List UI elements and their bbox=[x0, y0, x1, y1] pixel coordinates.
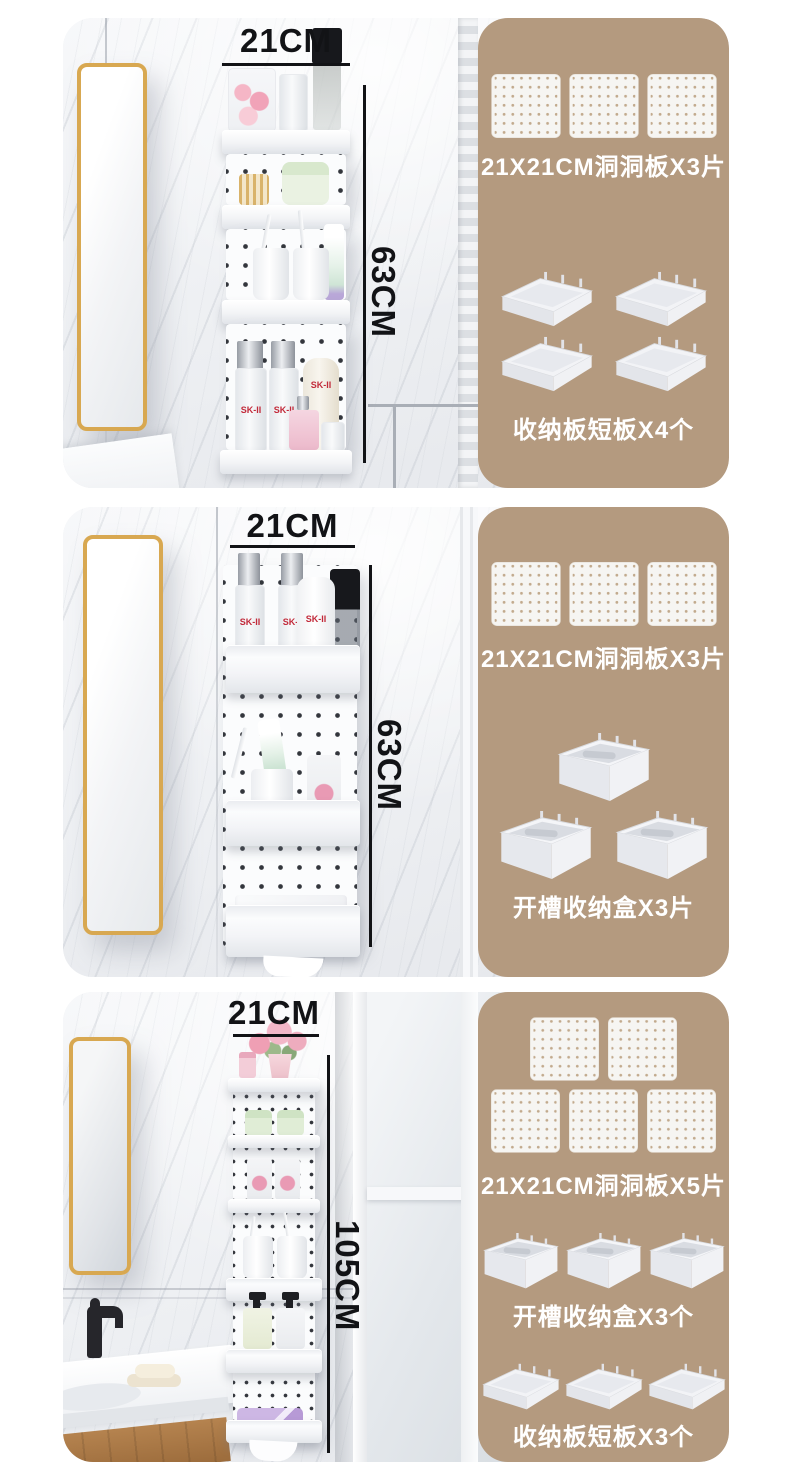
mirror bbox=[83, 535, 163, 935]
toothbrush-cup bbox=[277, 1236, 307, 1279]
pegboard-thumbnail bbox=[647, 1089, 716, 1153]
box-thumb-grid bbox=[496, 733, 712, 881]
tray-thumbnail bbox=[611, 336, 711, 393]
shelf-box bbox=[226, 645, 360, 693]
lotion-bottle bbox=[279, 74, 308, 132]
dimension-height-label: 63CM bbox=[367, 246, 400, 338]
pegboard-thumbnail bbox=[530, 1017, 599, 1081]
tissue-paper bbox=[263, 955, 324, 977]
faucet bbox=[87, 1314, 102, 1358]
dimension-width-label: 21CM bbox=[230, 509, 355, 542]
kit-caption: 21X21CM洞洞板X5片 bbox=[481, 1172, 726, 1202]
kit-caption: 21X21CM洞洞板X3片 bbox=[481, 645, 726, 675]
shelf-box bbox=[226, 800, 360, 846]
soap-bar bbox=[135, 1364, 175, 1378]
pegboard-thumbnail bbox=[647, 562, 717, 626]
tray-thumbnail bbox=[611, 271, 711, 328]
dimension-height-label: 105CM bbox=[331, 1220, 364, 1331]
kit-caption: 开槽收纳盒X3片 bbox=[513, 894, 694, 924]
flower-vase bbox=[266, 1054, 294, 1080]
brand-label: SK-II bbox=[311, 380, 332, 390]
makeup-sponge-jar bbox=[228, 68, 276, 132]
mirror bbox=[69, 1037, 131, 1275]
shelf-box bbox=[226, 1420, 322, 1443]
pegboard-thumb-grid bbox=[491, 1017, 716, 1153]
dimension-height-label: 63CM bbox=[373, 719, 406, 811]
kit-caption: 21X21CM洞洞板X3片 bbox=[481, 153, 726, 183]
box-thumbnail bbox=[496, 811, 596, 881]
dimension-width-line bbox=[222, 63, 350, 66]
shelf-box bbox=[226, 905, 360, 957]
perfume-sprayer bbox=[297, 396, 309, 410]
shelf-tray bbox=[228, 1078, 320, 1092]
box-thumb-grid bbox=[481, 1233, 727, 1290]
ribbed-glass-edge bbox=[458, 18, 478, 488]
tray-thumbnail bbox=[481, 1363, 561, 1411]
bathroom-scene-photo: SK-II SK-II SK-II 21CM 63CM bbox=[63, 507, 508, 977]
frosted-bottle bbox=[275, 1158, 300, 1200]
mirror bbox=[77, 63, 147, 431]
dimension-width-label: 21CM bbox=[228, 996, 320, 1029]
pink-perfume-bottle bbox=[289, 410, 319, 450]
shelf-box bbox=[226, 1349, 322, 1373]
kit-caption: 收纳板短板X4个 bbox=[513, 416, 694, 446]
green-speckled-jar bbox=[282, 162, 329, 205]
shelf-tray bbox=[228, 1135, 320, 1148]
green-jar bbox=[245, 1110, 272, 1136]
kit-contents-panel: 21X21CM洞洞板X3片 开槽收纳盒X3片 bbox=[478, 507, 729, 977]
pegboard-thumb-grid bbox=[491, 74, 717, 138]
pegboard-thumbnail bbox=[491, 74, 561, 138]
pegboard-thumb-grid bbox=[491, 562, 717, 626]
toner-bottle bbox=[313, 64, 341, 130]
tray-thumb-grid bbox=[481, 1363, 727, 1411]
tray-thumbnail bbox=[497, 271, 597, 328]
pump-bottle bbox=[243, 1308, 272, 1349]
brand-label: SK-II bbox=[306, 614, 327, 624]
pegboard-thumbnail bbox=[569, 562, 639, 626]
pegboard-thumbnail bbox=[569, 1089, 638, 1153]
pegboard-thumbnail bbox=[647, 74, 717, 138]
product-option-card-63cm-b: SK-II SK-II SK-II 21CM 63CM 21X21CM洞洞板X3… bbox=[63, 507, 729, 977]
mini-bottle bbox=[321, 422, 345, 452]
box-thumbnail bbox=[564, 1233, 644, 1290]
bathroom-scene-photo: 21CM 105CM bbox=[63, 992, 508, 1462]
kit-contents-panel: 21X21CM洞洞板X3片 收纳板短板X4个 bbox=[478, 18, 729, 488]
toothbrush-cup bbox=[293, 248, 329, 300]
shower-glass-bar bbox=[461, 992, 478, 1462]
toothbrush-cup bbox=[243, 1236, 273, 1279]
bottle-cap bbox=[271, 341, 295, 370]
tray-thumbnail bbox=[497, 336, 597, 393]
faucet-knob bbox=[90, 1298, 100, 1308]
kit-contents-panel: 21X21CM洞洞板X5片 开槽收纳盒X3个 收纳板短板X3个 bbox=[478, 992, 729, 1462]
box-thumbnail bbox=[612, 811, 712, 881]
dimension-width-line bbox=[230, 545, 355, 548]
product-option-card-63cm-a: SK-II SK-II SK-II 21CM 63CM 21X21CM洞洞板X3… bbox=[63, 18, 729, 488]
dimension-width-line bbox=[233, 1034, 319, 1037]
shelf-tray bbox=[222, 300, 350, 324]
frosted-bottle bbox=[247, 1158, 272, 1200]
door-frame-edge bbox=[460, 507, 478, 977]
tray-thumb-grid bbox=[497, 271, 711, 393]
tile-grout-line bbox=[393, 404, 396, 488]
bathroom-scene-photo: SK-II SK-II SK-II 21CM 63CM bbox=[63, 18, 508, 488]
kit-caption: 收纳板短板X3个 bbox=[513, 1423, 694, 1453]
kit-caption: 开槽收纳盒X3个 bbox=[513, 1303, 694, 1333]
dimension-width-label: 21CM bbox=[222, 24, 350, 57]
pump-bottle bbox=[276, 1308, 305, 1349]
bottle-cap bbox=[237, 341, 263, 370]
pegboard-thumbnail bbox=[491, 1089, 560, 1153]
shelf-box bbox=[226, 1278, 322, 1301]
shelf-tray bbox=[228, 1199, 320, 1213]
toothbrush-cup bbox=[253, 248, 289, 300]
shelf-tray bbox=[220, 450, 352, 474]
pegboard-thumbnail bbox=[491, 562, 561, 626]
bottle-cap bbox=[238, 553, 260, 587]
product-detail-page: SK-II SK-II SK-II 21CM 63CM 21X21CM洞洞板X3… bbox=[0, 0, 790, 1468]
brand-label: SK-II bbox=[241, 405, 262, 415]
box-thumbnail bbox=[647, 1233, 727, 1290]
skii-essence-bottle: SK-II bbox=[235, 368, 267, 452]
tissue-paper bbox=[249, 1440, 298, 1462]
gold-striped-jar bbox=[239, 174, 269, 205]
tray-thumbnail bbox=[647, 1363, 727, 1411]
box-thumbnail bbox=[554, 733, 654, 803]
product-option-card-105cm: 21CM 105CM 21X21CM洞洞板X5片 开槽收纳盒X3个 收纳板短板X… bbox=[63, 992, 729, 1462]
green-jar bbox=[277, 1110, 304, 1136]
tile-grout-line bbox=[368, 404, 478, 407]
pegboard-thumbnail bbox=[608, 1017, 677, 1081]
counter-edge bbox=[63, 433, 181, 488]
tray-thumbnail bbox=[564, 1363, 644, 1411]
box-thumbnail bbox=[481, 1233, 561, 1290]
tile-seam bbox=[216, 507, 218, 977]
shelf-tray bbox=[222, 130, 350, 154]
pegboard-thumbnail bbox=[569, 74, 639, 138]
faucet-tip bbox=[115, 1316, 123, 1328]
brand-label: SK-II bbox=[240, 617, 261, 627]
